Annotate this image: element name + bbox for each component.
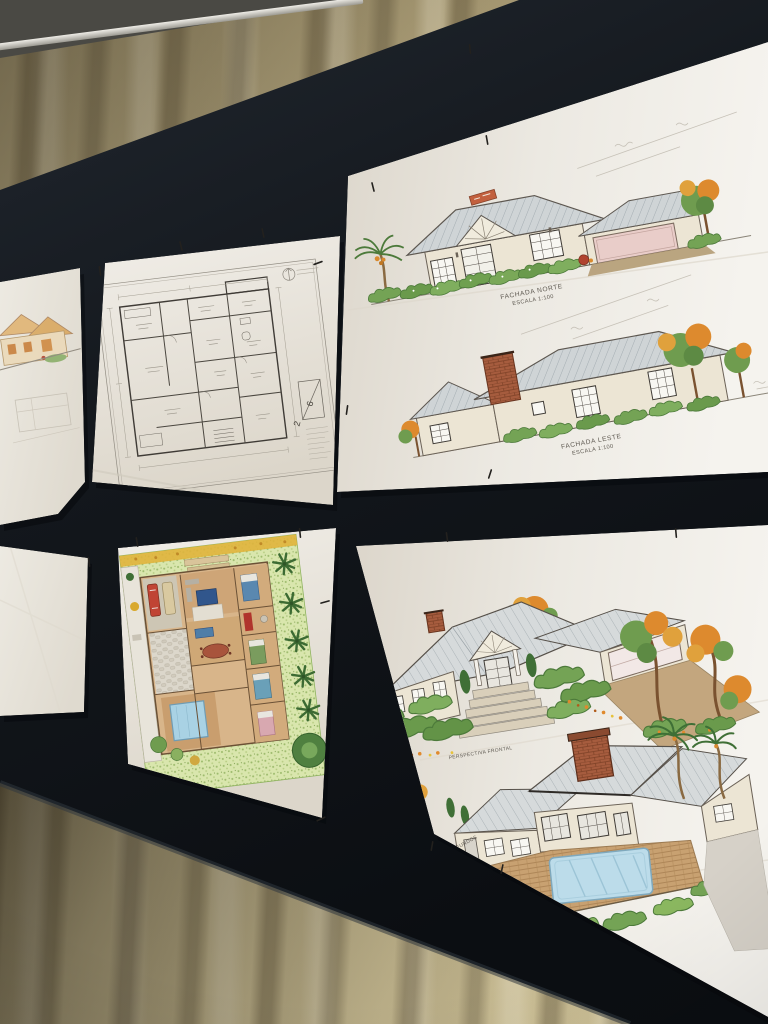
sheet-blank bbox=[0, 546, 88, 716]
board-and-sheets: 2 6 bbox=[0, 0, 768, 1024]
plan-pool bbox=[170, 701, 208, 741]
site-plan-drawing bbox=[119, 534, 330, 802]
sheet-floor-plan: 2 6 bbox=[92, 236, 343, 505]
house-footprint bbox=[140, 562, 289, 754]
sheet-elevation-partial bbox=[0, 268, 92, 525]
pool bbox=[549, 848, 653, 904]
photo-stage: 2 6 bbox=[0, 0, 768, 1024]
chimney bbox=[426, 611, 445, 633]
